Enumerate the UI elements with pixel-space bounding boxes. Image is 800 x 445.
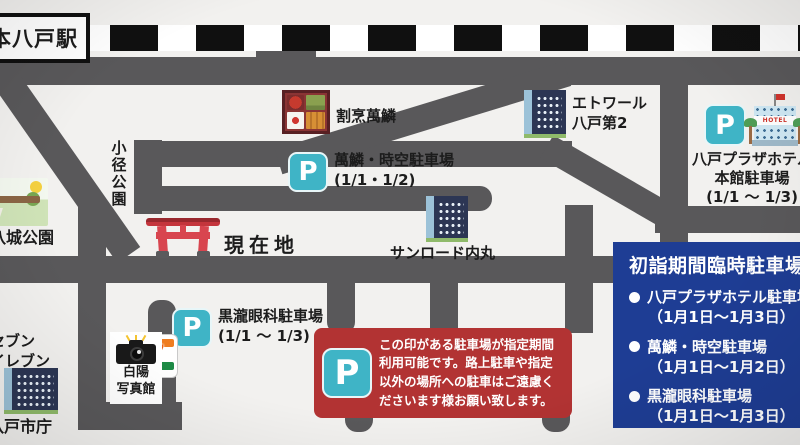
- bullet-icon: [629, 391, 640, 402]
- station-sign: 本八戸駅: [0, 13, 90, 63]
- parking-icon: P: [172, 308, 212, 348]
- hotel-icon: HOTEL: [750, 94, 800, 148]
- torii-gate-icon: [146, 218, 220, 258]
- city-hall-label: 八戸市庁: [0, 417, 52, 438]
- road-segment: [655, 206, 800, 233]
- bullet-icon: [629, 341, 640, 352]
- plaza-parking-label: 八戸プラザホテル 本館駐車場 (1/1 〜 1/3): [690, 150, 800, 206]
- station-name: 本八戸駅: [0, 23, 78, 53]
- legend-item: 萬鱗・時空駐車場 （1月1日〜1月2日）: [629, 337, 800, 378]
- restaurant-bento-icon: [282, 90, 330, 134]
- kurotaki-parking-label: 黒瀧眼科駐車場 (1/1 〜 1/3): [218, 307, 323, 346]
- legend-box: 初詣期間臨時駐車場 八戸プラザホテル駐車場 （1月1日〜1月3日） 萬鱗・時空駐…: [613, 242, 800, 428]
- parking-dates: (1/1・1/2): [334, 171, 454, 191]
- parking-name: 黒瀧眼科駐車場: [218, 307, 323, 327]
- miyagi-park-label: 三八城公園: [0, 228, 54, 249]
- building-icon: [524, 90, 566, 138]
- legend-item-dates: （1月1日〜1月2日）: [648, 357, 800, 377]
- railway-line: [72, 25, 800, 51]
- parking-icon: P: [704, 104, 746, 146]
- parking-name: 八戸プラザホテル: [690, 150, 800, 169]
- banrin-parking-label: 萬鱗・時空駐車場 (1/1・1/2): [334, 151, 454, 190]
- legend-item-name: 八戸プラザホテル駐車場: [647, 287, 800, 307]
- camera-icon: [115, 335, 157, 365]
- photo-studio-card: 白陽 写真館: [110, 332, 162, 404]
- etoile-label: エトワール 八戸第2: [572, 94, 647, 133]
- parking-dates: (1/1 〜 1/3): [218, 327, 323, 347]
- parking-name: 本館駐車場: [690, 169, 800, 188]
- road-segment: [78, 200, 106, 430]
- bullet-icon: [629, 292, 640, 303]
- park-picture-icon: [0, 178, 48, 226]
- legend-item-dates: （1月1日〜1月3日）: [648, 307, 800, 327]
- parking-icon: P: [288, 152, 328, 192]
- road-segment: [327, 277, 355, 334]
- building-icon: [4, 368, 58, 414]
- parking-dates: (1/1 〜 1/3): [690, 188, 800, 207]
- current-location-label: 現在地: [224, 232, 299, 258]
- legend-item: 黒瀧眼科駐車場 （1月1日〜1月3日）: [629, 386, 800, 427]
- komichi-park-label: 小径公園: [108, 140, 128, 208]
- parking-name: 萬鱗・時空駐車場: [334, 151, 454, 171]
- parking-icon: P: [322, 348, 372, 398]
- legend-title: 初詣期間臨時駐車場: [629, 251, 800, 278]
- notice-text: この印がある駐車場が指定期間 利用可能です。路上駐車や指定 以外の場所への駐車は…: [379, 336, 554, 411]
- photo-studio-label: 白陽 写真館: [116, 365, 155, 399]
- parking-guide-map: 本八戸駅 割烹萬鱗 P 萬鱗・時空駐車場 (1/1・1/2) エトワール 八戸第…: [0, 0, 800, 445]
- legend-item-name: 萬鱗・時空駐車場: [647, 337, 767, 357]
- notice-box: P この印がある駐車場が指定期間 利用可能です。路上駐車や指定 以外の場所への駐…: [314, 328, 572, 418]
- sunroad-label: サンロード内丸: [390, 244, 495, 264]
- seven-eleven-label: セブン イレブン: [0, 332, 50, 371]
- building-icon: [426, 196, 468, 242]
- legend-item-dates: （1月1日〜1月3日）: [648, 406, 800, 426]
- legend-item: 八戸プラザホテル駐車場 （1月1日〜1月3日）: [629, 287, 800, 328]
- restaurant-label: 割烹萬鱗: [336, 107, 396, 127]
- hotel-sign-text: HOTEL: [763, 117, 788, 124]
- legend-item-name: 黒瀧眼科駐車場: [647, 386, 752, 406]
